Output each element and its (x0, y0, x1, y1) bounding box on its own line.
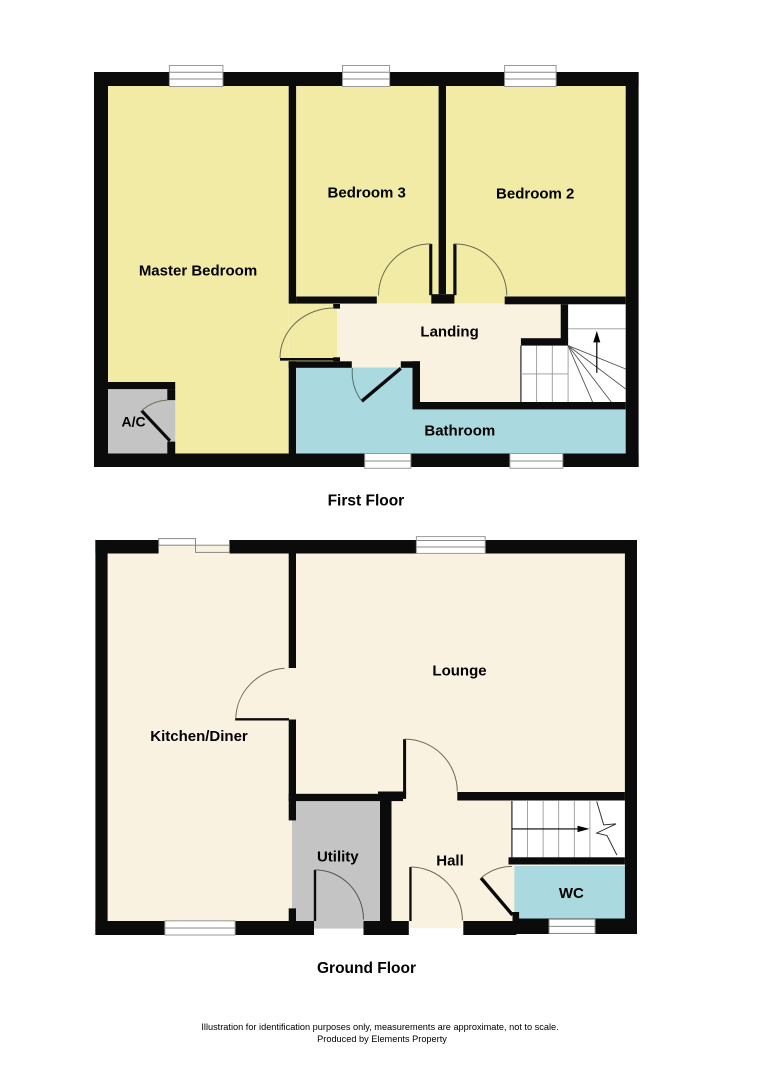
svg-text:Lounge: Lounge (432, 663, 486, 680)
svg-text:Ground Floor: Ground Floor (317, 960, 416, 977)
svg-text:Bedroom 3: Bedroom 3 (328, 184, 406, 201)
svg-text:Master Bedroom: Master Bedroom (139, 262, 257, 279)
svg-text:Kitchen/Diner: Kitchen/Diner (150, 728, 248, 745)
svg-text:Illustration for identificatio: Illustration for identification purposes… (201, 1022, 558, 1032)
svg-text:Bedroom 2: Bedroom 2 (496, 186, 574, 203)
svg-text:Produced by Elements Property: Produced by Elements Property (317, 1034, 447, 1044)
svg-text:Hall: Hall (436, 853, 464, 870)
svg-text:Bathroom: Bathroom (424, 423, 495, 440)
svg-text:A/C: A/C (122, 414, 146, 430)
svg-text:Utility: Utility (317, 849, 359, 866)
svg-text:First Floor: First Floor (328, 493, 405, 510)
svg-text:Landing: Landing (420, 324, 478, 341)
svg-text:WC: WC (559, 885, 584, 902)
